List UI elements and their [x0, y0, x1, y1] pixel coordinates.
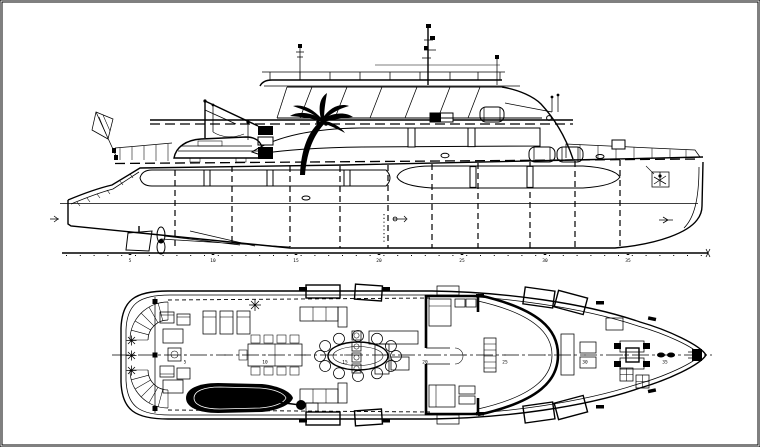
station-label: 15 [293, 258, 299, 264]
side-elevation-view: 5 10 15 20 25 30 35 [50, 24, 710, 264]
station-label: 20 [376, 258, 382, 264]
plan-station-label: 5 [184, 360, 187, 366]
chain-link [657, 353, 665, 358]
plan-station-label: 25 [502, 360, 508, 366]
flag-icon [92, 112, 118, 160]
foredeck [529, 140, 700, 187]
mast-aft [296, 44, 304, 80]
bulkhead-lines [175, 160, 620, 248]
sun-loungers [203, 311, 250, 334]
porthole-aft [302, 196, 310, 200]
bow-rail [566, 144, 700, 158]
plan-station-label: 30 [582, 360, 588, 366]
propeller-icon [157, 227, 165, 254]
chain-link [667, 353, 675, 358]
stern-steps [77, 174, 133, 206]
stern-draft-mark [50, 216, 59, 222]
sun-deck-slab-top [260, 80, 502, 86]
main-mast [422, 24, 436, 85]
deck-plan-view: 5 10 15 20 25 30 35 [112, 284, 712, 426]
hull-profile [68, 157, 703, 248]
house-window-band [252, 128, 540, 154]
aft-hull-window-band [140, 170, 390, 186]
sun-deck [260, 24, 520, 86]
aft-rail-stanchions [120, 144, 168, 161]
salon-sofa-port [300, 307, 347, 327]
plan-station-label: 35 [662, 360, 668, 366]
deck-plants [127, 299, 262, 376]
deck-hatches-mirror [306, 395, 588, 425]
porthole-bow [596, 155, 604, 159]
station-label: 35 [625, 258, 631, 264]
main-deck-dashed-line [115, 159, 700, 164]
forward-hull-window-band [397, 166, 620, 188]
station-label: 25 [459, 258, 465, 264]
stern-staircase-starboard [130, 370, 168, 408]
paper-background [0, 0, 760, 447]
stern-arch-inner [71, 172, 139, 204]
plan-station-label: 20 [422, 360, 428, 366]
house-window-mullions [408, 128, 475, 147]
plan-station-label: 15 [342, 360, 348, 366]
deck-console [561, 334, 574, 375]
sheet-border [2, 2, 758, 445]
drawing-sheet: 5 10 15 20 25 30 35 [0, 0, 760, 447]
window-mullions-aft [204, 170, 350, 186]
porthole-mid [441, 153, 449, 158]
nav-light-box [612, 140, 625, 149]
salon-sofa-starboard [300, 383, 347, 403]
station-label: 10 [210, 258, 216, 264]
tender-boat-profile [174, 137, 262, 162]
antenna-whips [552, 96, 558, 112]
bar-stools [352, 331, 361, 373]
aft-rail [115, 143, 172, 148]
anchor-icon [646, 166, 669, 187]
aft-lounge-furniture [160, 312, 190, 393]
capstan-drum-port [580, 342, 596, 353]
plan-station-label: 10 [262, 360, 268, 366]
tender-boat-plan [186, 383, 318, 413]
anchor-symbol-small [393, 216, 407, 222]
baseline-ruler: 5 10 15 20 25 30 35 [62, 249, 710, 264]
foredeck-gear [561, 318, 702, 388]
station-label: 30 [542, 258, 548, 264]
window-mullions-fwd [470, 166, 533, 187]
rail-stanchions [270, 72, 500, 80]
stem-inner-line [684, 167, 699, 228]
hull-bottom-and-stem [68, 162, 703, 248]
fore-hatch [606, 318, 623, 330]
bow-draft-mark [659, 217, 673, 223]
station-label: 5 [129, 258, 132, 264]
stern-staircase-port [130, 302, 168, 340]
